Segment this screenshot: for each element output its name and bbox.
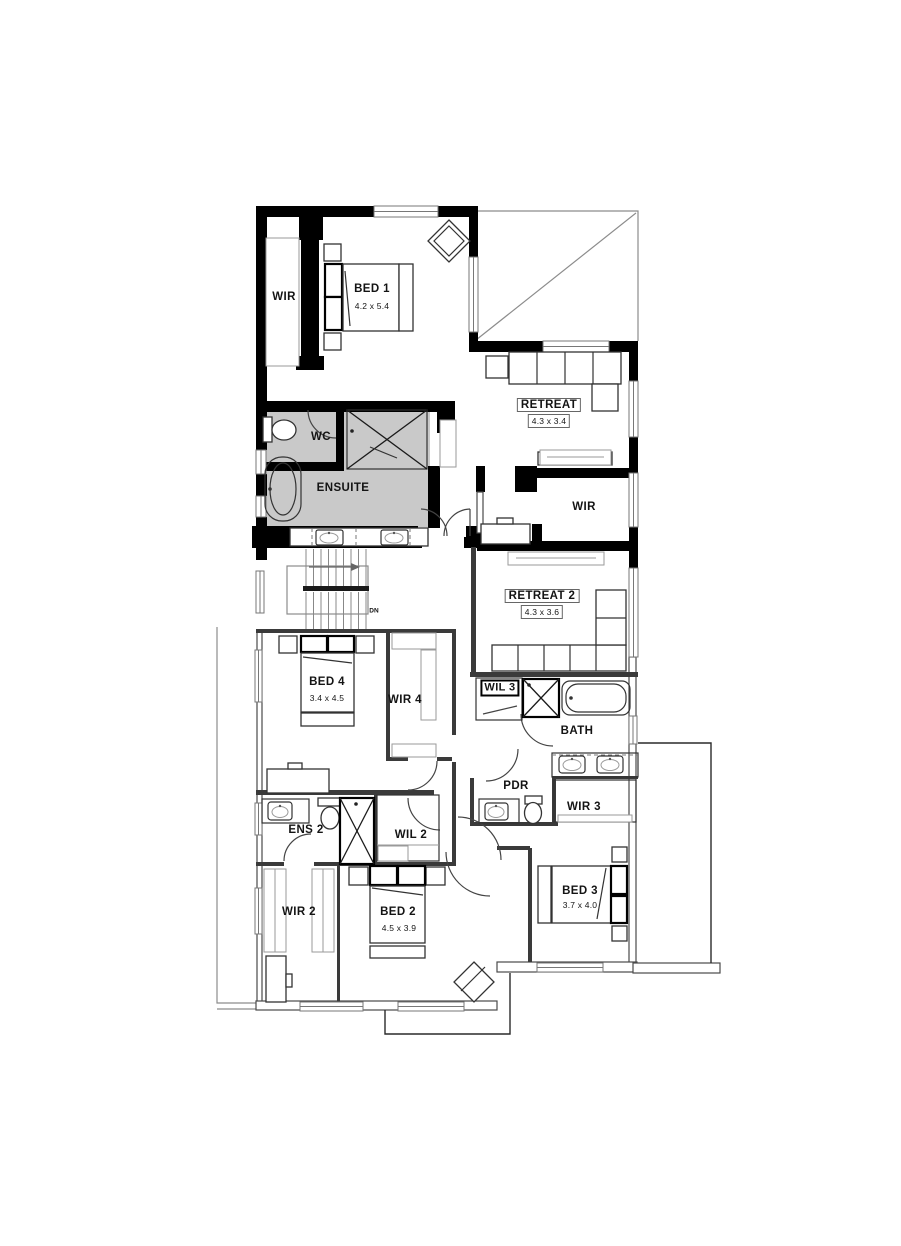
wc-toilet xyxy=(272,420,296,440)
room-label-wc: WC xyxy=(311,431,331,443)
room-label-bed3: BED 3 xyxy=(562,885,598,897)
room-label-retreat2: RETREAT 2 xyxy=(505,589,580,603)
bed2-armchair xyxy=(454,962,494,1002)
room-label-wir2: WIR 2 xyxy=(282,906,316,918)
wir-b-dresser xyxy=(481,524,530,544)
room-label-bed2: BED 2 xyxy=(380,906,416,918)
bed4-dresser xyxy=(267,769,329,793)
room-dims-bed1: 4.2 x 5.4 xyxy=(355,301,389,311)
room-label-wil3: WIL 3 xyxy=(480,680,519,697)
room-dims-retreat2: 4.3 x 3.6 xyxy=(521,605,563,619)
pdr-toilet xyxy=(525,803,542,824)
stair-handrail xyxy=(303,586,369,591)
void-diagonal-line xyxy=(476,213,636,340)
room-label-pdr: PDR xyxy=(503,780,528,792)
room-dims-bed4: 3.4 x 4.5 xyxy=(310,693,344,703)
ens2-toilet xyxy=(321,807,339,829)
room-dims-bed2: 4.5 x 3.9 xyxy=(382,923,416,933)
wir2-cabinet xyxy=(266,956,286,1002)
room-label-bath: BATH xyxy=(561,725,594,737)
floor-plan-page: WIR BED 1 4.2 x 5.4 RETREAT 4.3 x 3.4 WC… xyxy=(0,0,901,1246)
floor-plan-drawing xyxy=(0,0,901,1246)
room-dims-bed3: 3.7 x 4.0 xyxy=(563,900,597,910)
room-dims-retreat: 4.3 x 3.4 xyxy=(528,414,570,428)
room-label-bed1: BED 1 xyxy=(354,283,390,295)
staircase xyxy=(287,549,369,629)
room-label-wil2: WIL 2 xyxy=(395,829,427,841)
wir-a-wall xyxy=(301,211,319,359)
room-label-wir3: WIR 3 xyxy=(567,801,601,813)
room-label-ensuite: ENSUITE xyxy=(317,482,370,494)
pdr-fixtures xyxy=(479,796,542,824)
room-label-wir-a: WIR xyxy=(272,291,296,303)
bed2-furniture xyxy=(349,866,494,1002)
bed4-furniture xyxy=(267,636,374,793)
room-label-wir-b: WIR xyxy=(572,501,596,513)
stair-direction-label: DN xyxy=(369,608,378,615)
wil3-door-line xyxy=(483,706,517,714)
room-label-retreat: RETREAT xyxy=(517,398,581,412)
bed1-bed xyxy=(343,264,399,331)
wir2-furniture xyxy=(264,869,334,1002)
ensuite-niche xyxy=(440,420,456,467)
room-label-wir4: WIR 4 xyxy=(388,694,422,706)
room-label-ens2: ENS 2 xyxy=(288,824,323,836)
room-label-bed4: BED 4 xyxy=(309,676,345,688)
retreat2-sofa xyxy=(492,645,626,671)
